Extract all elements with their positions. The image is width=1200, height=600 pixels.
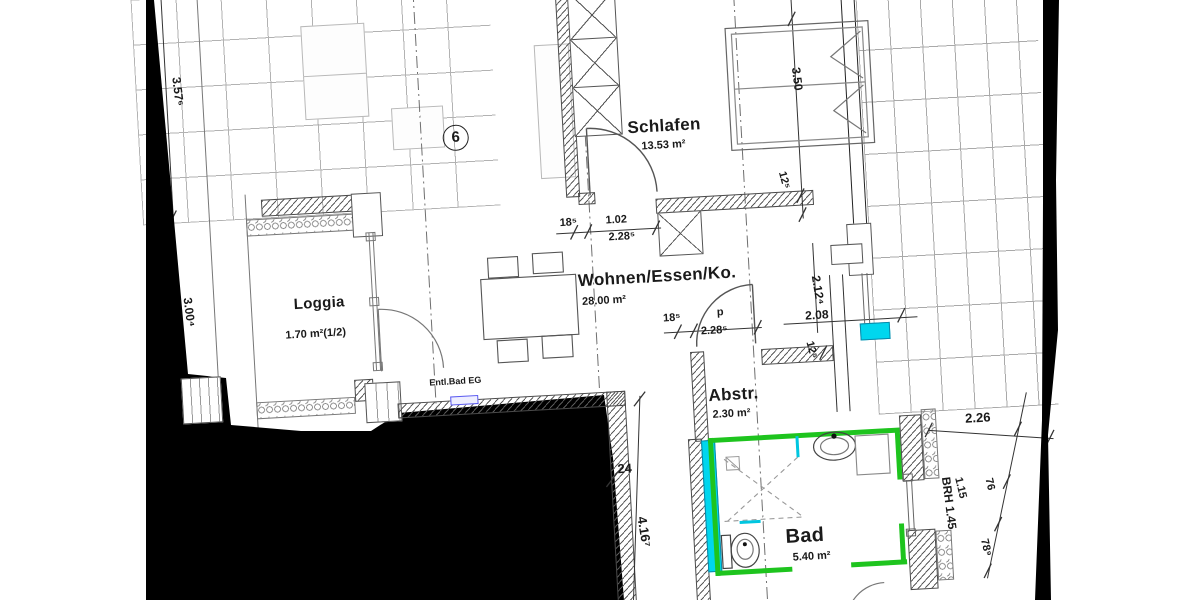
plan-overlay-layer: 24 4.16⁷ Entl.Bad EG <box>0 0 1200 600</box>
overlay-ticks <box>0 0 1200 600</box>
dim-corridor-wall: 24 <box>617 461 632 475</box>
note-blue-mark <box>450 395 478 406</box>
floorplan-scan: Schlafen 13.53 m² Wohnen/Essen/Ko. 28.00… <box>0 0 1200 600</box>
